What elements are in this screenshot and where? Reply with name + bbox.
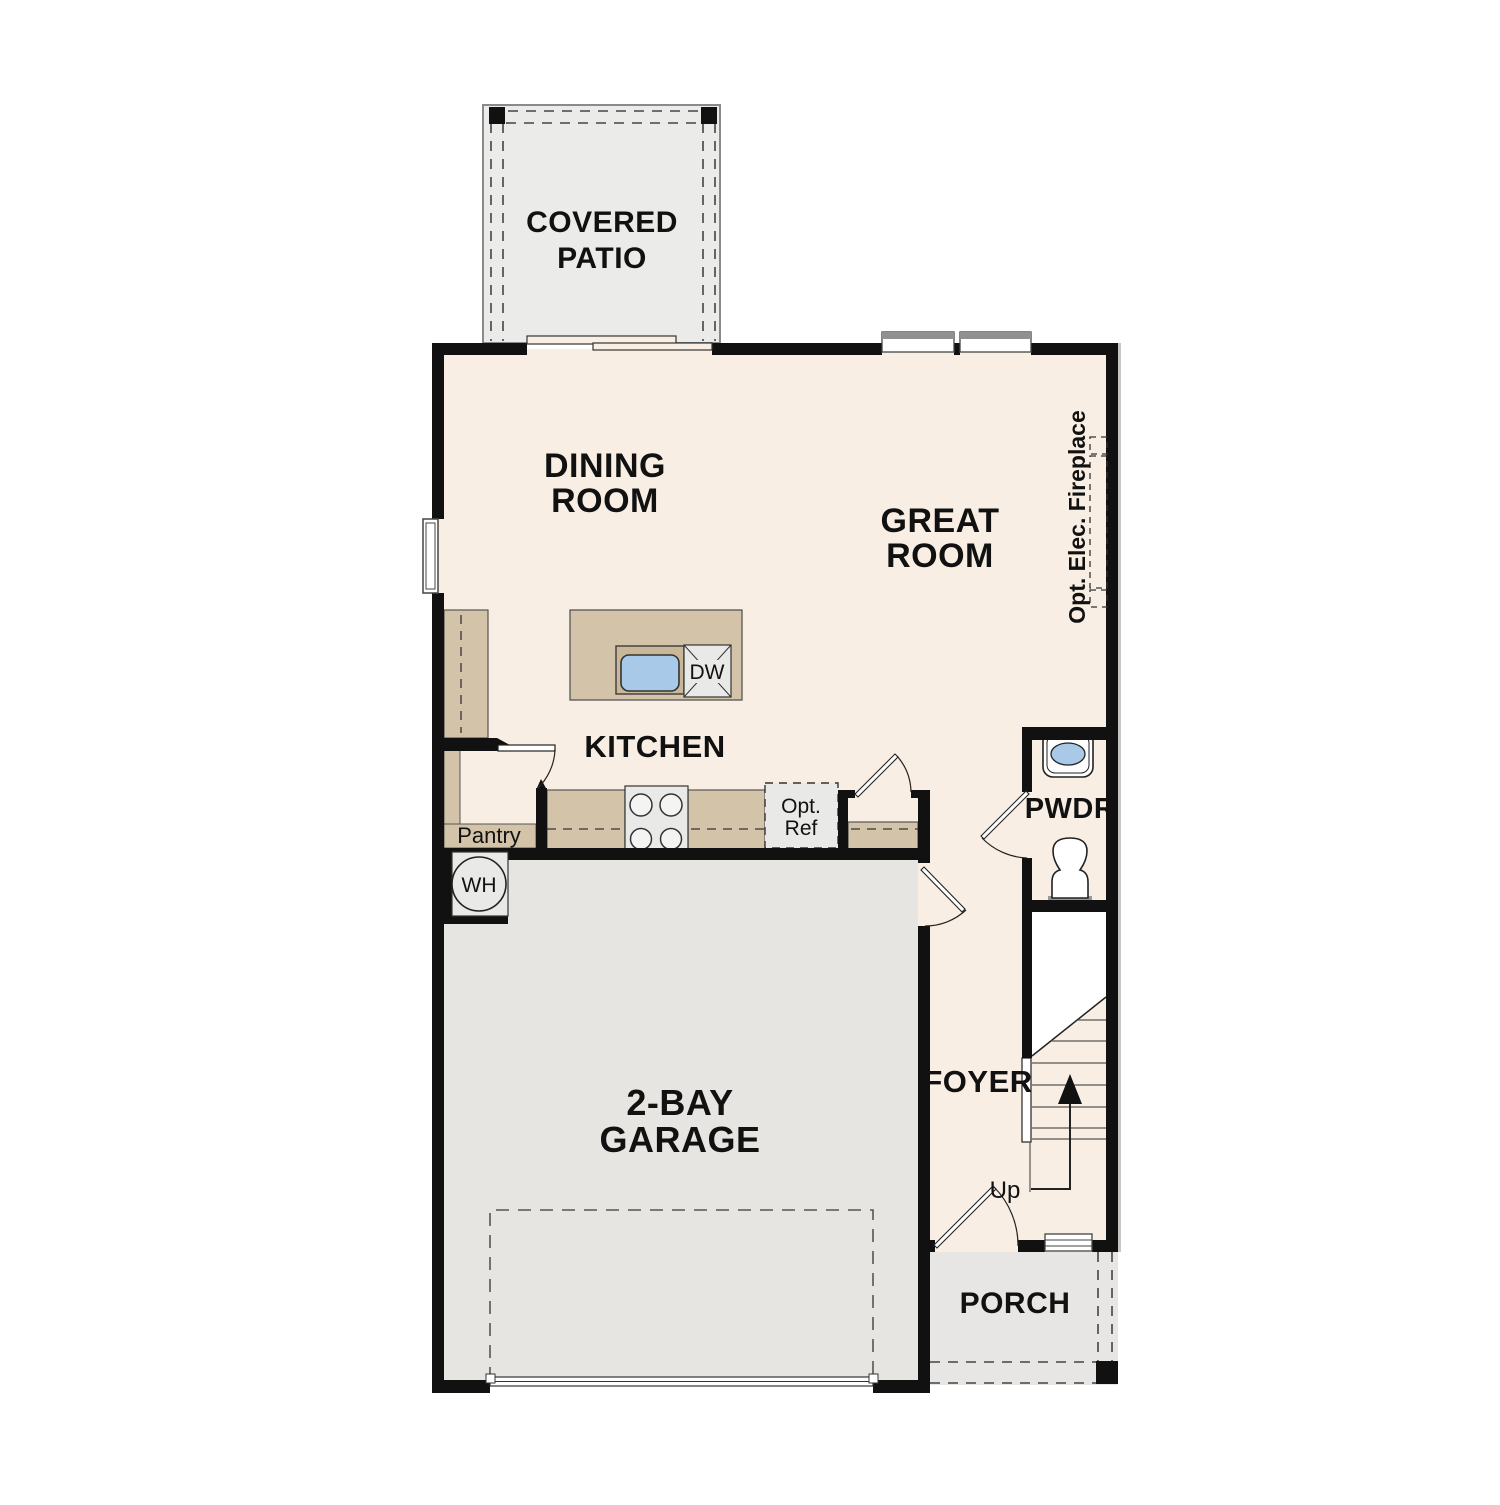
counter-bottom-right <box>688 790 765 850</box>
pwdr-sink-icon <box>1051 743 1085 765</box>
counter-left <box>444 610 488 738</box>
garage-label-1: 2-BAY <box>626 1082 733 1123</box>
outer-edge-shadow <box>1118 343 1121 1252</box>
great-room-label-1: GREAT <box>881 502 1000 540</box>
dining-room-label-1: DINING <box>544 447 666 485</box>
counter-bottom-left <box>547 790 625 850</box>
floorplan-drawing: DW Opt. Ref <box>0 0 1500 1500</box>
stairs-up-label: Up <box>990 1177 1021 1204</box>
nook-floor <box>848 798 918 822</box>
great-room-label-2: ROOM <box>886 537 994 575</box>
opt-ref-label-2: Ref <box>785 817 818 840</box>
patio-post <box>489 107 505 124</box>
garage-label-2: GARAGE <box>599 1119 760 1160</box>
foyer-window <box>1045 1234 1092 1251</box>
foyer-label: FOYER <box>923 1064 1032 1099</box>
dishwasher-label: DW <box>690 661 725 684</box>
floorplan-page: DW Opt. Ref <box>0 0 1500 1500</box>
pantry-shelf-left <box>444 740 460 826</box>
powder-room-label: PWDR <box>1025 793 1116 825</box>
dining-room-label-2: ROOM <box>551 482 659 520</box>
fireplace-label: Opt. Elec. Fireplace <box>1064 410 1090 623</box>
covered-patio-label-2: PATIO <box>557 242 647 275</box>
pantry-label: Pantry <box>457 823 521 848</box>
stove-icon <box>625 786 688 856</box>
covered-patio-label-1: COVERED <box>526 206 678 239</box>
kitchen-label: KITCHEN <box>584 729 725 764</box>
porch-post <box>1096 1361 1118 1384</box>
opt-ref-label-1: Opt. <box>781 795 821 818</box>
porch-label: PORCH <box>960 1287 1071 1320</box>
pantry-door <box>498 745 555 751</box>
water-heater-label: WH <box>462 874 497 897</box>
dining-window <box>423 519 438 593</box>
sink-icon <box>621 655 679 691</box>
counter-nook <box>848 822 918 850</box>
patio-post <box>701 107 717 124</box>
